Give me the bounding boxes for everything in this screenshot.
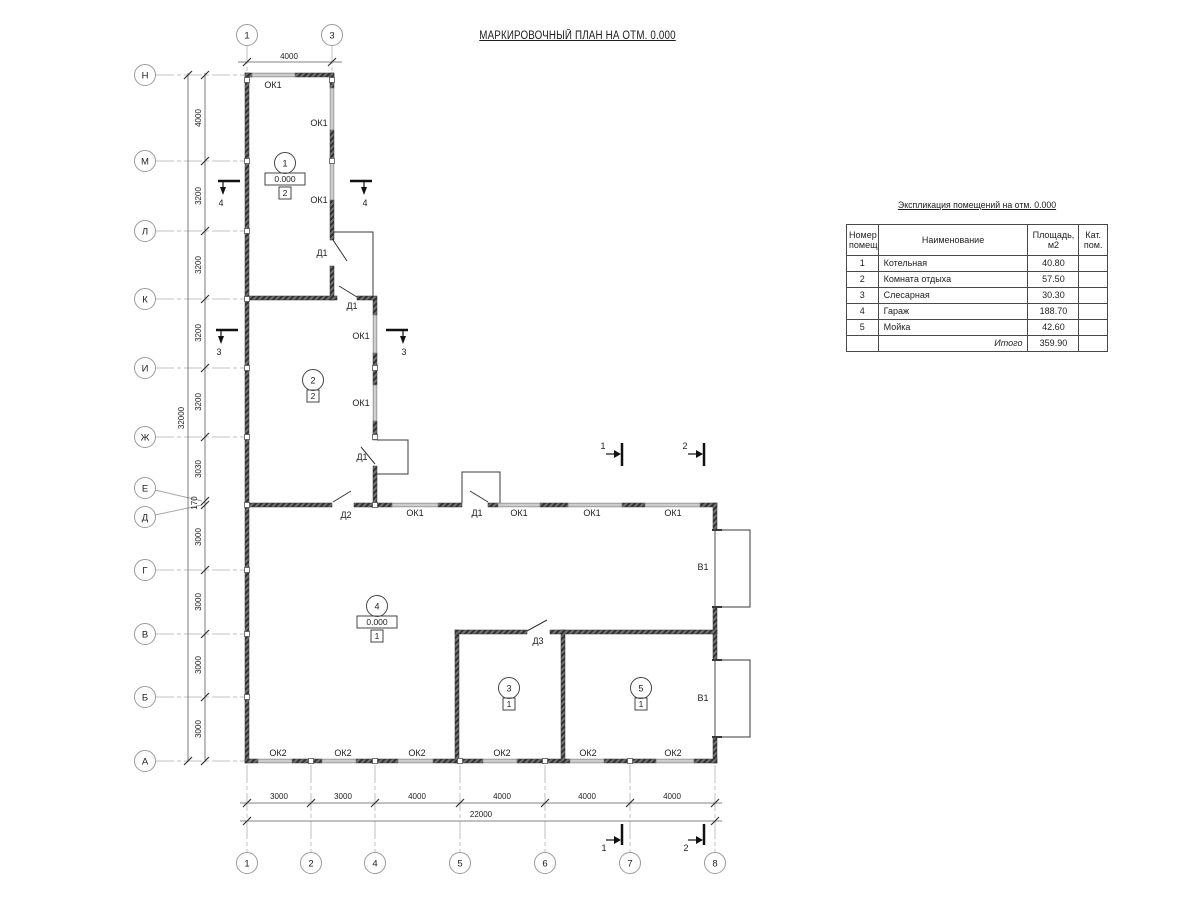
room-number: 5 — [638, 684, 643, 694]
dim-label: 3000 — [194, 656, 203, 674]
drawing-title: МАРКИРОВОЧНЫЙ ПЛАН НА ОТМ. 0.000 — [452, 30, 703, 42]
room-number: 1 — [282, 159, 287, 169]
door-label: Д2 — [340, 510, 351, 520]
dim-label: 4000 — [578, 792, 596, 801]
wall-segment — [713, 503, 717, 530]
window-label: ОК1 — [352, 398, 369, 408]
room-area-cell: 188.70 — [1028, 304, 1079, 320]
room-number: 3 — [506, 684, 511, 694]
dim-label: 3200 — [194, 324, 203, 342]
axis-label: 2 — [308, 859, 313, 870]
window-label: ОК1 — [310, 195, 327, 205]
total-label-cell: Итого — [878, 336, 1028, 352]
axis-label: А — [142, 757, 149, 768]
dim-total-label: 22000 — [470, 810, 493, 819]
wall-segment — [540, 503, 568, 507]
axis-grid-lines — [156, 46, 715, 852]
dim-label: 3000 — [194, 528, 203, 546]
room-number: 2 — [310, 376, 315, 386]
wall-segment — [622, 503, 645, 507]
axis-label: Е — [142, 484, 148, 495]
room-name-cell: Слесарная — [878, 288, 1028, 304]
room-category: 1 — [375, 631, 380, 641]
dim-label: 3030 — [194, 460, 203, 478]
room-category-cell — [1079, 320, 1108, 336]
dim-label: 4000 — [280, 52, 298, 61]
section-label: 2 — [682, 441, 687, 451]
dim-label: 3000 — [334, 792, 352, 801]
wall-segment — [550, 630, 717, 634]
axis-label: 3 — [329, 31, 334, 42]
room-name-cell: Гараж — [878, 304, 1028, 320]
col-header-number: Номер помещ. — [847, 225, 879, 256]
wall-segment — [245, 759, 258, 763]
table-row: 3 Слесарная 30.30 — [847, 288, 1108, 304]
wall-segment — [373, 466, 377, 503]
gates — [712, 530, 750, 737]
room-area-cell: 57.50 — [1028, 272, 1079, 288]
section-label: 3 — [216, 347, 221, 357]
dim-label: 3000 — [194, 720, 203, 738]
windows — [252, 73, 700, 763]
wall-segment — [561, 630, 565, 763]
room-category: 2 — [283, 188, 288, 198]
wall-segment — [330, 130, 334, 158]
door-label: Д1 — [346, 301, 357, 311]
axis-bubbles: 1 3 1 2 4 5 6 7 8 Н М Л К И Ж Е Д Г В Б — [135, 25, 726, 874]
axis-label: 1 — [244, 859, 249, 870]
total-value-cell: 359.90 — [1028, 336, 1079, 352]
walls — [245, 73, 717, 763]
gate-label: В1 — [697, 693, 708, 703]
door-leaf — [333, 240, 347, 261]
axis-label: 6 — [542, 859, 547, 870]
gate-apron — [717, 660, 750, 737]
dim-label: 3200 — [194, 187, 203, 205]
axis-label: 1 — [244, 31, 249, 42]
window-label: ОК2 — [664, 748, 681, 758]
window-label: ОК1 — [406, 508, 423, 518]
wall-segment — [357, 296, 377, 300]
axis-label: М — [141, 157, 149, 168]
wall-segment — [245, 73, 249, 763]
gate-apron — [717, 530, 750, 607]
section-label: 1 — [600, 441, 605, 451]
room-number-cell: 3 — [847, 288, 879, 304]
dim-label: 3200 — [194, 256, 203, 274]
door-label: Д3 — [532, 636, 543, 646]
wall-segment — [245, 503, 332, 507]
axis-label: И — [142, 364, 149, 375]
axis-label: 8 — [712, 859, 717, 870]
room-area-cell: 42.60 — [1028, 320, 1079, 336]
wall-segment — [455, 630, 527, 634]
section-label: 4 — [218, 198, 223, 208]
dim-label: 4000 — [493, 792, 511, 801]
room-number-cell: 1 — [847, 256, 879, 272]
vestibule-outline — [462, 472, 500, 503]
room-elevation: 0.000 — [274, 174, 296, 184]
window-label: ОК1 — [510, 508, 527, 518]
door-leaf — [527, 620, 547, 631]
window-label: ОК1 — [352, 331, 369, 341]
axis-label: Г — [142, 566, 147, 577]
table-row: 2 Комната отдыха 57.50 — [847, 272, 1108, 288]
room-category: 2 — [311, 391, 316, 401]
explication-title: Экспликация помещений на отм. 0.000 — [856, 200, 1097, 211]
window-label: ОК2 — [269, 748, 286, 758]
room-elevation: 0.000 — [366, 617, 388, 627]
section-marks: 4 4 3 3 1 2 1 2 — [216, 181, 704, 853]
room-name-cell: Мойка — [878, 320, 1028, 336]
table-row: 5 Мойка 42.60 — [847, 320, 1108, 336]
wall-segment — [330, 200, 334, 240]
wall-segment — [488, 503, 498, 507]
drawing-sheet: МАРКИРОВОЧНЫЙ ПЛАН НА ОТМ. 0.000 — [0, 0, 1200, 900]
col-header-category: Кат. пом. — [1079, 225, 1108, 256]
window-label: ОК1 — [310, 118, 327, 128]
axis-label: К — [142, 295, 148, 306]
col-header-name: Наименование — [878, 225, 1028, 256]
room-category-cell — [1079, 288, 1108, 304]
dim-label: 4000 — [408, 792, 426, 801]
dim-label: 3000 — [270, 792, 288, 801]
col-header-area: Площадь, м2 — [1028, 225, 1079, 256]
section-label: 4 — [362, 198, 367, 208]
table-header-row: Номер помещ. Наименование Площадь, м2 Ка… — [847, 225, 1108, 256]
dim-label: 3200 — [194, 393, 203, 411]
door-leaf — [339, 286, 357, 297]
gate-label: В1 — [697, 562, 708, 572]
room-category-cell — [1079, 256, 1108, 272]
vestibules — [334, 232, 500, 503]
door-label: Д1 — [316, 248, 327, 258]
wall-segment — [245, 296, 337, 300]
axis-label: 7 — [627, 859, 632, 870]
axis-label: 5 — [457, 859, 462, 870]
room-category: 1 — [639, 699, 644, 709]
window-label: ОК2 — [334, 748, 351, 758]
door-leaf — [470, 491, 488, 502]
room-category: 1 — [507, 699, 512, 709]
wall-segment — [292, 759, 322, 763]
room-category-cell — [1079, 272, 1108, 288]
window-label: ОК1 — [264, 80, 281, 90]
table-row: 1 Котельная 40.80 — [847, 256, 1108, 272]
room-number-cell: 5 — [847, 320, 879, 336]
section-label: 1 — [601, 843, 606, 853]
wall-segment — [694, 759, 717, 763]
vestibule-outline — [377, 440, 408, 474]
axis-label: Н — [142, 71, 149, 82]
dim-label: 4000 — [663, 792, 681, 801]
room-category-cell — [1079, 304, 1108, 320]
dim-label: 3000 — [194, 593, 203, 611]
room-name-cell: Котельная — [878, 256, 1028, 272]
window-label: ОК2 — [579, 748, 596, 758]
door-label: Д1 — [356, 452, 367, 462]
door-label: Д1 — [471, 508, 482, 518]
room-number: 4 — [374, 602, 379, 612]
window-label: ОК1 — [664, 508, 681, 518]
dim-total-label: 32000 — [177, 406, 186, 429]
dim-label: 4000 — [194, 109, 203, 127]
wall-node-markers — [245, 78, 633, 764]
wall-segment — [373, 300, 377, 315]
explication-panel: Экспликация помещений на отм. 0.000 Номе… — [846, 200, 1108, 352]
window-label: ОК2 — [493, 748, 510, 758]
section-label: 2 — [683, 843, 688, 853]
room-number-cell: 2 — [847, 272, 879, 288]
explication-table: Номер помещ. Наименование Площадь, м2 Ка… — [846, 224, 1108, 352]
wall-segment — [455, 630, 459, 763]
dimension-labels: 4000 4000 3200 3200 3200 3200 3030 170 3… — [177, 52, 681, 819]
table-total-row: Итого 359.90 — [847, 336, 1108, 352]
axis-label: Б — [142, 693, 148, 704]
wall-segment — [438, 503, 462, 507]
dim-label: 170 — [190, 496, 199, 510]
window-label: ОК1 — [583, 508, 600, 518]
window-label: ОК2 — [408, 748, 425, 758]
room-area-cell: 30.30 — [1028, 288, 1079, 304]
wall-segment — [295, 73, 334, 77]
door-leaf — [333, 491, 351, 502]
axis-label: 4 — [372, 859, 377, 870]
axis-label: Л — [142, 227, 148, 238]
room-number-cell: 4 — [847, 304, 879, 320]
axis-label: Ж — [141, 433, 150, 444]
axis-label: Д — [142, 513, 149, 524]
room-name-cell: Комната отдыха — [878, 272, 1028, 288]
room-tags: 1 0.000 2 2 2 4 0.000 1 3 1 — [265, 153, 652, 711]
wall-segment — [330, 266, 334, 300]
room-area-cell: 40.80 — [1028, 256, 1079, 272]
axis-label: В — [142, 630, 148, 641]
wall-segment — [245, 73, 252, 77]
table-row: 4 Гараж 188.70 — [847, 304, 1108, 320]
section-label: 3 — [401, 347, 406, 357]
floor-plan-canvas: 4000 4000 3200 3200 3200 3200 3030 170 3… — [0, 0, 1200, 900]
